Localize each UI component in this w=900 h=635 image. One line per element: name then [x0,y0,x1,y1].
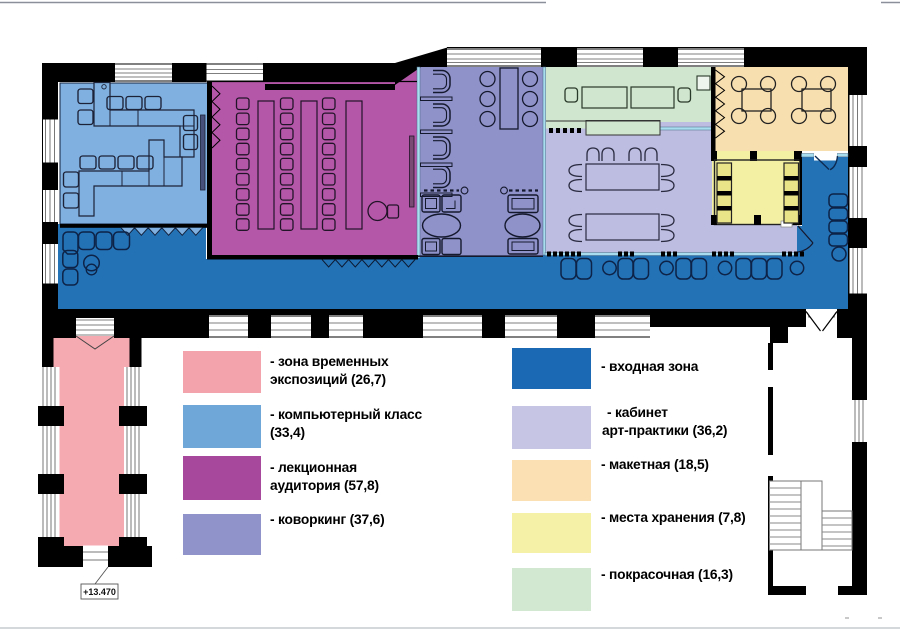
svg-text:аудитория (57,8): аудитория (57,8) [270,478,379,493]
svg-text:- лекционная: - лекционная [270,460,357,475]
svg-text:арт-практики (36,2): арт-практики (36,2) [602,423,727,438]
svg-text:- зона временных: - зона временных [270,354,389,369]
svg-text:- макетная (18,5): - макетная (18,5) [601,457,709,472]
svg-text:- компьютерный класс: - компьютерный класс [270,407,423,422]
svg-text:- входная зона: - входная зона [601,359,699,374]
svg-text:- кабинет: - кабинет [607,405,668,420]
svg-text:- коворкинг (37,6): - коворкинг (37,6) [270,512,384,527]
svg-text:- покрасочная (16,3): - покрасочная (16,3) [601,567,733,582]
svg-text:+13.470: +13.470 [83,587,116,597]
svg-text:экспозиций (26,7): экспозиций (26,7) [270,372,386,387]
svg-text:(33,4): (33,4) [270,425,305,440]
svg-text:- места хранения (7,8): - места хранения (7,8) [601,510,746,525]
